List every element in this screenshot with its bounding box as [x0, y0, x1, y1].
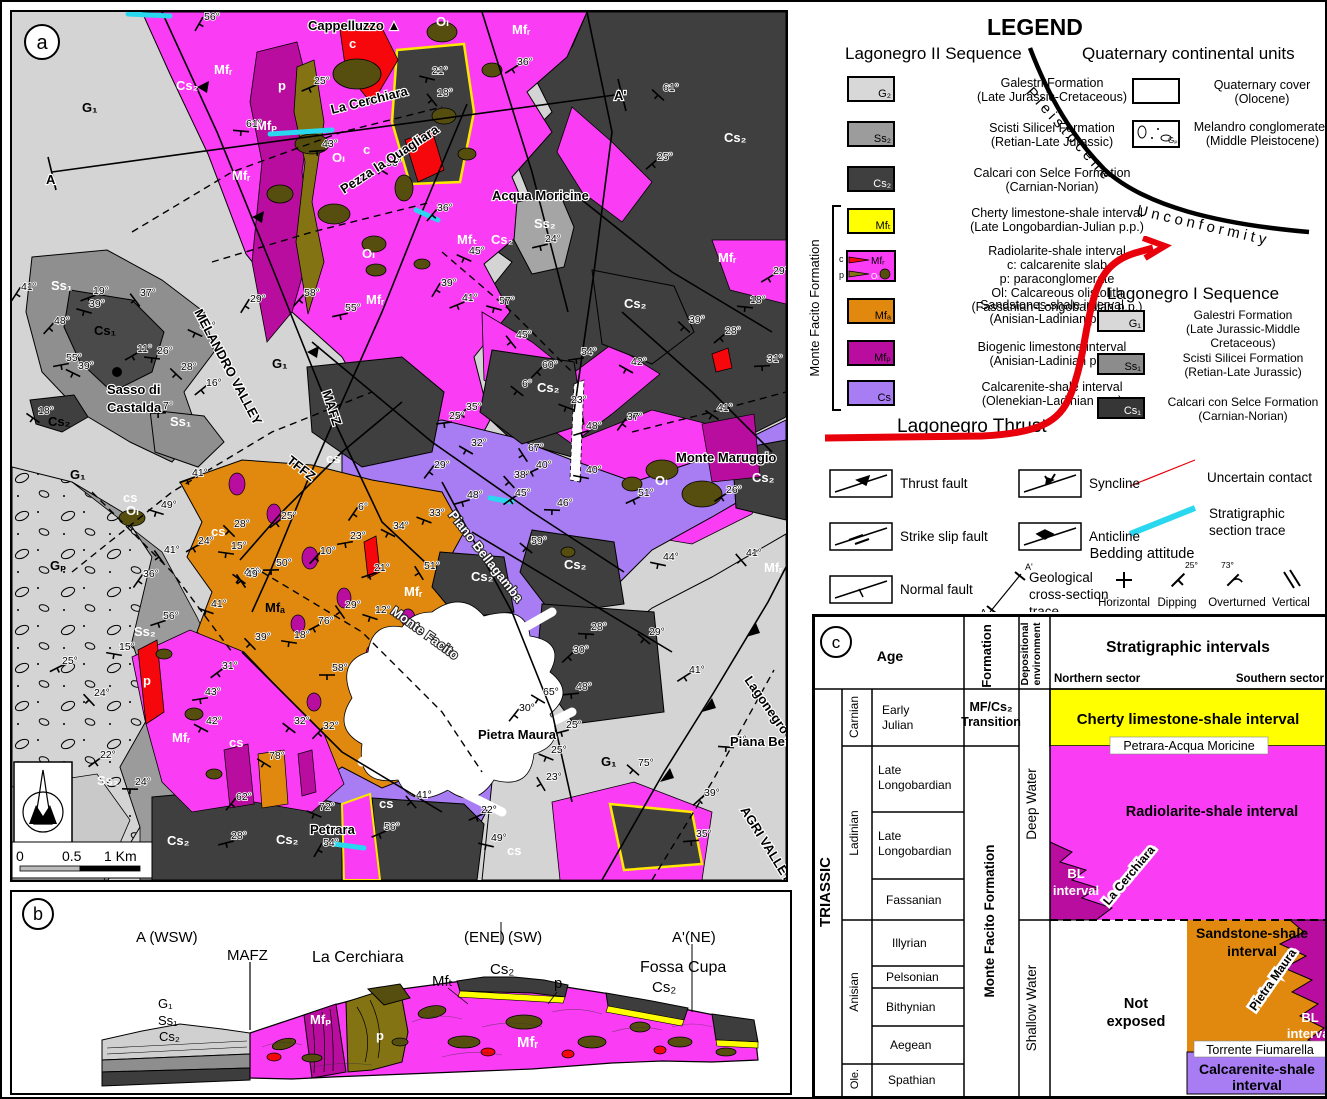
svg-text:55°: 55°: [345, 302, 361, 314]
mfcs2-transition1: MF/Cs₂: [969, 700, 1012, 714]
not-exposed1: Not: [1124, 996, 1148, 1012]
l: (Late Jurassic-Middle Cretaceous): [1186, 322, 1300, 350]
unit-label: G₁: [70, 467, 86, 482]
bl1-label1: BL: [1067, 866, 1084, 881]
figure: 0 0.5 1 Km MfᵣMfᵣMfᵣMfᵣMfᵣMfᵣMfᵣMfᵣCs₂Cs…: [0, 0, 1327, 1099]
unit-label: Ss₂: [97, 773, 119, 788]
unit-label: Gₚ: [50, 558, 66, 573]
stage: Spathian: [888, 1073, 935, 1087]
xsec-ol-label: Oₗ: [376, 970, 389, 985]
svg-text:72°: 72°: [319, 801, 335, 813]
mfcs2-transition2: Transition: [961, 715, 1021, 729]
unit-label: Mfₐ: [265, 600, 285, 615]
epoch-ladinian: Ladinian: [847, 810, 861, 855]
uncertain-contact-label: Uncertain contact: [1207, 470, 1312, 485]
unit-label: Ss₂: [534, 216, 556, 231]
place-label: Petrara: [310, 822, 356, 837]
unit-label: p: [278, 78, 286, 93]
stage: Longobardian: [878, 778, 951, 792]
unit-label: Mfᵣ: [512, 22, 531, 37]
svg-text:36°: 36°: [437, 202, 453, 214]
svg-text:32°: 32°: [323, 720, 339, 732]
svg-text:28°: 28°: [234, 518, 250, 530]
petrara-acqua-moricine: Petrara-Acqua Moricine: [1123, 739, 1254, 753]
svg-text:35°: 35°: [466, 401, 482, 413]
normal-fault-label: Normal fault: [900, 582, 973, 597]
svg-text:24°: 24°: [198, 535, 214, 547]
not-exposed2: exposed: [1107, 1014, 1166, 1030]
intervals-header: Stratigraphic intervals: [1106, 639, 1270, 656]
strike-slip-label: Strike slip fault: [900, 529, 988, 544]
svg-text:22°: 22°: [481, 804, 497, 816]
svg-text:25°: 25°: [449, 410, 465, 422]
svg-text:49°: 49°: [246, 568, 262, 580]
svg-text:61°: 61°: [246, 118, 262, 130]
svg-text:23°: 23°: [546, 771, 562, 783]
epoch-olenekian: Ole.: [849, 1069, 861, 1089]
unit-label: Oₗ: [332, 150, 345, 165]
svg-text:31°: 31°: [767, 353, 783, 365]
stage: Late: [878, 829, 902, 843]
xsec-aprime-label: A'(NE): [672, 929, 716, 946]
svg-text:16°: 16°: [206, 377, 222, 389]
xsec-ene-label: (ENE): [464, 929, 505, 946]
unit-label: cs: [229, 735, 243, 750]
unit-label: Cs₂: [176, 78, 199, 93]
depenv-header2: environment: [1031, 622, 1043, 686]
unit-label: Mfᵣ: [172, 730, 191, 745]
unit-label: Cs₂: [724, 130, 747, 145]
bl2-label2: interval: [1287, 1026, 1327, 1041]
svg-text:41°: 41°: [164, 544, 180, 556]
anticline-label: Anticline: [1089, 529, 1140, 544]
deep-water: Deep Water: [1024, 768, 1039, 840]
xsec-mafz: MAFZ: [227, 947, 268, 964]
unit-label: Cs₁: [94, 323, 116, 338]
vertical-label: Vertical: [1272, 597, 1310, 609]
place-label: Sasso di: [107, 382, 160, 397]
svg-text:40°: 40°: [586, 464, 602, 476]
svg-text:21°: 21°: [374, 562, 390, 574]
stage: Longobardian: [878, 844, 951, 858]
unit-label: Mfᵣ: [764, 560, 783, 575]
svg-text:49°: 49°: [491, 832, 507, 844]
unit-label: cs: [474, 630, 488, 645]
svg-text:48°: 48°: [576, 681, 592, 693]
svg-text:56°: 56°: [163, 610, 179, 622]
strat-trace-label1: Stratigraphic: [1209, 506, 1285, 521]
unit-label: Cs₂: [276, 832, 299, 847]
svg-text:39°: 39°: [689, 314, 705, 326]
svg-text:42°: 42°: [206, 715, 222, 727]
xsec-p2-label: p: [376, 1028, 384, 1043]
svg-text:48°: 48°: [54, 315, 70, 327]
age-header: Age: [877, 648, 904, 664]
svg-text:26°: 26°: [157, 345, 173, 357]
torrente-fiumarella: Torrente Fiumarella: [1206, 1043, 1314, 1057]
svg-text:25°: 25°: [657, 151, 673, 163]
unit-label: c: [349, 36, 356, 51]
svg-text:32°: 32°: [471, 437, 487, 449]
xsec-mfp-label: Mfₚ: [310, 1012, 331, 1027]
svg-text:58°: 58°: [304, 287, 320, 299]
xsec-p-label: p: [554, 975, 562, 992]
unit-label: Ss₁: [170, 414, 191, 429]
label-g1: Galestri Formation(Late Jurassic-Middle …: [1153, 308, 1327, 350]
svg-text:48°: 48°: [586, 420, 602, 432]
svg-text:44°: 44°: [663, 551, 679, 563]
svg-text:33°: 33°: [429, 507, 445, 519]
svg-text:46°: 46°: [557, 497, 573, 509]
xsec-sw-label: (SW): [508, 929, 542, 946]
xsec-la-cerchiara: La Cerchiara: [312, 949, 404, 966]
thrust-fault-label: Thrust fault: [900, 476, 968, 491]
bl2-label1: BL: [1301, 1010, 1318, 1025]
lagonegro1-title: Lagonegro I Sequence: [1107, 284, 1279, 304]
svg-text:25°: 25°: [281, 510, 297, 522]
strat-chart-panel: Age Formation Depositional environment S…: [812, 614, 1327, 1099]
cross-section-label1: Geological: [1029, 570, 1093, 585]
stage: Early: [882, 703, 909, 717]
unit-label: G₁: [82, 100, 98, 115]
svg-text:41°: 41°: [192, 467, 208, 479]
unit-label: Cs₂: [537, 380, 560, 395]
svg-text:45°: 45°: [469, 245, 485, 257]
svg-text:54°: 54°: [581, 346, 597, 358]
svg-text:29°: 29°: [345, 599, 361, 611]
cross-aprime: A': [1025, 562, 1033, 572]
svg-text:41°: 41°: [689, 664, 705, 676]
svg-text:25°: 25°: [314, 75, 330, 87]
xsec-g1: G₁: [158, 996, 173, 1011]
svg-text:24°: 24°: [135, 776, 151, 788]
panel-letter-a: a: [36, 32, 48, 54]
legend: LEGEND Lagonegro II Sequence G₂ Galestri…: [797, 6, 1327, 612]
xsec-ss1: Ss₁: [158, 1013, 178, 1028]
over-value: 73°: [1221, 560, 1234, 570]
svg-text:18°: 18°: [38, 405, 54, 417]
svg-text:15°: 15°: [231, 540, 247, 552]
svg-text:37°: 37°: [140, 287, 156, 299]
place-label: Castalda: [107, 400, 162, 415]
svg-text:45°: 45°: [515, 487, 531, 499]
svg-text:36°: 36°: [517, 56, 533, 68]
svg-text:57°: 57°: [499, 295, 515, 307]
panel-letter-b: b: [33, 904, 43, 924]
monte-facito-formation: Monte Facito Formation: [982, 845, 997, 998]
svg-text:67°: 67°: [528, 442, 544, 454]
xsec-cs2-left: Cs₂: [159, 1029, 180, 1044]
svg-text:19°: 19°: [93, 285, 109, 297]
l: (Carnian-Norian): [1198, 409, 1287, 423]
unit-label: Ss₂: [134, 624, 156, 639]
svg-text:25°: 25°: [62, 655, 78, 667]
stage: Illyrian: [892, 936, 927, 950]
code-ss1: Ss₁: [1124, 361, 1141, 373]
svg-text:60°: 60°: [542, 359, 558, 371]
l: Galestri Formation: [1194, 308, 1293, 322]
svg-text:23°: 23°: [350, 530, 366, 542]
formation-header: Formation: [979, 624, 994, 688]
svg-text:22°: 22°: [100, 749, 116, 761]
unit-label: Cs₂: [752, 470, 775, 485]
label-cs1: Calcari con Selce Formation(Carnian-Nori…: [1153, 395, 1327, 423]
unit-label: Oₗ: [436, 14, 449, 29]
unit-label: p: [143, 673, 151, 688]
stage: Bithynian: [886, 1000, 935, 1014]
place-label: Monte Maruggio: [676, 450, 776, 465]
svg-text:56°: 56°: [384, 821, 400, 833]
svg-text:41°: 41°: [462, 292, 478, 304]
unit-label: Oₗ: [655, 473, 668, 488]
svg-text:29°: 29°: [434, 459, 450, 471]
svg-text:35°: 35°: [696, 828, 712, 840]
dip-value: 25°: [1185, 560, 1198, 570]
l: Scisti Silicei Formation: [1183, 351, 1304, 365]
svg-text:28°: 28°: [591, 621, 607, 633]
calcarenite-label1: Calcarenite-shale: [1199, 1061, 1315, 1077]
svg-text:28°: 28°: [231, 830, 247, 842]
unit-label: Mfᵣ: [366, 292, 385, 307]
stage: Fassanian: [886, 893, 941, 907]
svg-text:41°: 41°: [21, 281, 37, 293]
svg-text:62°: 62°: [236, 791, 252, 803]
svg-text:24°: 24°: [94, 687, 110, 699]
xsec-fossa-cs2: Cs₂: [652, 979, 676, 996]
map-cs2-yellow-rim: [610, 804, 702, 870]
svg-text:65°: 65°: [543, 686, 559, 698]
unit-label: G₁: [272, 356, 288, 371]
svg-text:58°: 58°: [332, 662, 348, 674]
stage: Aegean: [890, 1038, 931, 1052]
svg-text:6°: 6°: [522, 378, 532, 390]
svg-text:59°: 59°: [531, 535, 547, 547]
depenv-header1: Depositional: [1019, 622, 1031, 685]
place-label: Pietra Maura: [478, 727, 557, 742]
svg-text:38°: 38°: [514, 469, 530, 481]
cross-section-label2: cross-section: [1029, 587, 1109, 602]
svg-text:7°: 7°: [163, 400, 173, 412]
cross-a: A: [980, 608, 987, 612]
swatch-ss1: Ss₁: [1097, 353, 1145, 375]
svg-text:25°: 25°: [566, 719, 582, 731]
unit-label: G₁: [601, 754, 617, 769]
svg-text:18°: 18°: [294, 629, 310, 641]
place-label: Piana Betina: [730, 734, 788, 749]
era-label: TRIASSIC: [817, 857, 834, 927]
svg-text:49°: 49°: [161, 499, 177, 511]
overturned-label: Overturned: [1208, 597, 1266, 609]
unit-label: Cs₂: [491, 232, 514, 247]
svg-text:42°: 42°: [631, 356, 647, 368]
swatch-cs1: Cs₁: [1097, 397, 1145, 419]
syncline-label: Syncline: [1089, 476, 1140, 491]
svg-text:39°: 39°: [441, 277, 457, 289]
geologic-map-panel: 0 0.5 1 Km MfᵣMfᵣMfᵣMfᵣMfᵣMfᵣMfᵣMfᵣCs₂Cs…: [10, 10, 788, 882]
unit-label: Cs₂: [564, 557, 587, 572]
svg-text:39°: 39°: [704, 787, 720, 799]
svg-text:15°: 15°: [119, 641, 135, 653]
l: Calcari con Selce Formation: [1168, 395, 1319, 409]
sandstone-label1: Sandstone-shale: [1196, 925, 1308, 941]
cherty-label: Cherty limestone-shale interval: [1077, 711, 1300, 728]
svg-text:30°: 30°: [519, 702, 535, 714]
symbol-key: Thrust fault Syncline Uncertain contact …: [797, 456, 1327, 612]
unit-label: Mfᵣ: [404, 584, 423, 599]
svg-text:50°: 50°: [276, 557, 292, 569]
xsec-cs2-top: Cs₂: [490, 961, 514, 978]
cross-section-label3: trace: [1029, 604, 1059, 612]
svg-text:41°: 41°: [211, 598, 227, 610]
scale-one: 1 Km: [104, 848, 137, 864]
svg-text:37°: 37°: [627, 411, 643, 423]
place-label: A': [614, 88, 626, 103]
code-g1: G₁: [1129, 318, 1141, 330]
unit-label: Mfᵣ: [718, 250, 737, 265]
svg-text:48°: 48°: [467, 489, 483, 501]
unit-label: Cs₂: [167, 833, 190, 848]
unit-label: Cs₂: [624, 296, 647, 311]
svg-text:45°: 45°: [516, 329, 532, 341]
sandstone-label2: interval: [1227, 943, 1277, 959]
epoch-anisian: Anisian: [847, 972, 861, 1011]
xsec-mfr-label: Mfᵣ: [517, 1034, 538, 1051]
unit-label: Oₗ: [126, 503, 139, 518]
svg-text:39°: 39°: [89, 298, 105, 310]
svg-text:25°: 25°: [551, 744, 567, 756]
unit-label: Ss₁: [51, 278, 72, 293]
radiolarite-label: Radiolarite-shale interval: [1126, 804, 1298, 820]
calcarenite-label2: interval: [1232, 1077, 1282, 1093]
place-label: A: [46, 172, 56, 187]
svg-text:10°: 10°: [320, 545, 336, 557]
svg-text:78°: 78°: [269, 750, 285, 762]
svg-text:36°: 36°: [143, 568, 159, 580]
bl1-label2: interval: [1053, 883, 1099, 898]
cross-section-panel: A (WSW) (ENE) (SW) A'(NE) Fossa Cupa Cs₂…: [10, 890, 792, 1095]
svg-text:54°: 54°: [323, 837, 339, 849]
svg-text:29°: 29°: [773, 265, 788, 277]
scale-bar: 0 0.5 1 Km: [12, 842, 152, 878]
scale-half: 0.5: [62, 848, 82, 864]
unit-label: cs: [326, 451, 340, 466]
dipping-label: Dipping: [1158, 597, 1197, 609]
swatch-g1: G₁: [1097, 310, 1145, 332]
xsec-mft: Mfₜ: [432, 973, 453, 990]
svg-text:40°: 40°: [536, 459, 552, 471]
xsec-a-label: A (WSW): [136, 929, 198, 946]
stage: Julian: [882, 718, 913, 732]
stage: Late: [878, 763, 902, 777]
unit-label: Mfᵣ: [232, 168, 251, 183]
svg-text:23°: 23°: [571, 394, 587, 406]
svg-text:24°: 24°: [545, 233, 561, 245]
epoch-carnian: Carnian: [847, 696, 861, 738]
svg-text:43°: 43°: [205, 686, 221, 698]
svg-text:51°: 51°: [638, 487, 654, 499]
svg-text:6°: 6°: [358, 501, 368, 513]
panel-letter-c: c: [832, 633, 841, 652]
l: (Retian-Late Jurassic): [1184, 365, 1301, 379]
svg-text:30°: 30°: [573, 644, 589, 656]
place-label: Cappelluzzo ▲: [308, 18, 400, 33]
svg-text:28°: 28°: [725, 325, 741, 337]
bedding-attitude-title: Bedding attitude: [1090, 546, 1195, 562]
svg-text:18°: 18°: [437, 87, 453, 99]
svg-text:39°: 39°: [255, 631, 271, 643]
unit-label: Mfᵣ: [214, 62, 233, 77]
svg-text:29°: 29°: [250, 293, 266, 305]
svg-text:31°: 31°: [222, 660, 238, 672]
xsec-fossa-cupa: Fossa Cupa: [640, 959, 726, 976]
svg-text:26°: 26°: [726, 484, 742, 496]
svg-text:76°: 76°: [318, 615, 334, 627]
svg-text:34°: 34°: [393, 520, 409, 532]
svg-text:51°: 51°: [424, 560, 440, 572]
svg-text:28°: 28°: [181, 361, 197, 373]
label-ss1: Scisti Silicei Formation(Retian-Late Jur…: [1153, 351, 1327, 379]
svg-text:61°: 61°: [663, 82, 679, 94]
svg-text:18°: 18°: [750, 294, 766, 306]
svg-text:43°: 43°: [322, 138, 338, 150]
southern-sector: Southern sector: [1236, 673, 1325, 685]
unit-label: c: [363, 142, 370, 157]
svg-text:39°: 39°: [78, 360, 94, 372]
svg-text:75°: 75°: [638, 757, 654, 769]
place-label: Acqua Moricine: [492, 188, 589, 203]
svg-text:41°: 41°: [717, 402, 733, 414]
svg-text:21°: 21°: [432, 65, 448, 77]
svg-text:32°: 32°: [294, 715, 310, 727]
unit-label: cs: [379, 796, 393, 811]
svg-text:41°: 41°: [746, 547, 762, 559]
svg-text:11°: 11°: [137, 343, 152, 355]
code-cs1: Cs₁: [1124, 405, 1141, 417]
north-arrow: [14, 762, 72, 844]
town-marker: [112, 367, 122, 377]
stage: Pelsonian: [886, 970, 939, 984]
horizontal-label: Horizontal: [1098, 597, 1150, 609]
scale-zero: 0: [16, 848, 24, 864]
strat-trace-label2: section trace: [1209, 523, 1286, 538]
unit-label: Oₗ: [362, 246, 375, 261]
svg-text:41°: 41°: [416, 789, 432, 801]
northern-sector: Northern sector: [1054, 673, 1141, 685]
unit-label: cs: [507, 843, 521, 858]
shallow-water: Shallow Water: [1024, 964, 1039, 1051]
svg-text:29°: 29°: [649, 626, 665, 638]
svg-text:56°: 56°: [204, 11, 220, 23]
